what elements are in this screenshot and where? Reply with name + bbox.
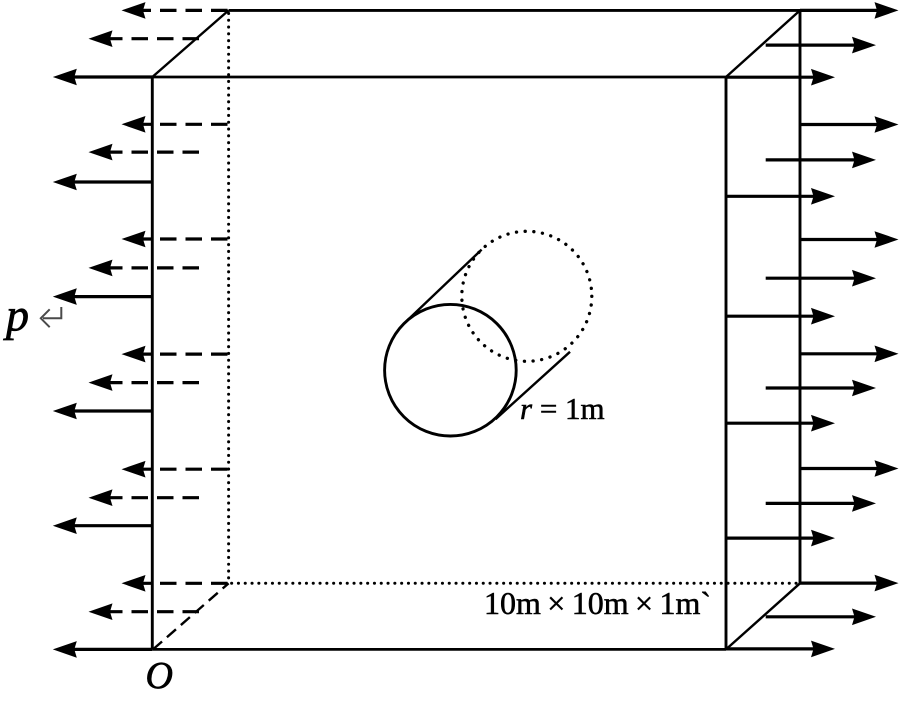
svg-text:10m × 10m × 1m`: 10m × 10m × 1m` bbox=[484, 585, 711, 621]
svg-text:r = 1m: r = 1m bbox=[520, 391, 605, 426]
svg-text:O: O bbox=[146, 655, 173, 696]
svg-text:p: p bbox=[3, 290, 29, 341]
